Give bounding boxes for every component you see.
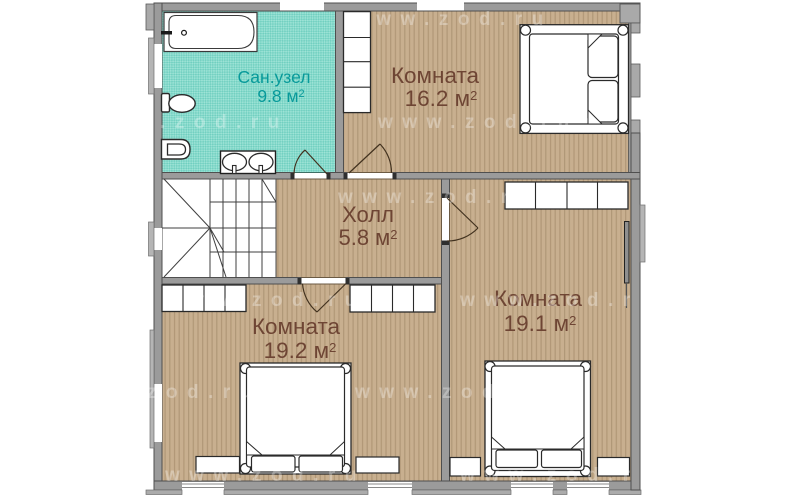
svg-text:Комната: Комната — [391, 63, 480, 88]
svg-text:16.2 м2: 16.2 м2 — [405, 86, 478, 111]
svg-text:www.zod.ru: www.zod.ru — [59, 382, 261, 403]
svg-text:www.zod.ru: www.zod.ru — [337, 187, 539, 208]
svg-text:www.zod.ru: www.zod.ru — [354, 382, 556, 403]
svg-text:www.zod.ru: www.zod.ru — [164, 290, 366, 311]
svg-text:19.2 м2: 19.2 м2 — [264, 338, 337, 363]
svg-text:19.1 м2: 19.1 м2 — [504, 311, 577, 336]
svg-text:www.zod.ru: www.zod.ru — [459, 290, 661, 311]
svg-text:Сан.узел: Сан.узел — [237, 67, 310, 87]
svg-text:www.zod.ru: www.zod.ru — [164, 465, 366, 486]
svg-text:5.8 м2: 5.8 м2 — [338, 225, 397, 250]
svg-text:www.zod.ru: www.zod.ru — [351, 9, 553, 30]
svg-text:www.zod.ru: www.zod.ru — [459, 465, 661, 486]
svg-text:www.zod.ru: www.zod.ru — [377, 112, 579, 133]
svg-text:www.zod.ru: www.zod.ru — [87, 112, 289, 133]
svg-text:9.8 м2: 9.8 м2 — [257, 86, 304, 106]
svg-text:Комната: Комната — [252, 314, 341, 339]
